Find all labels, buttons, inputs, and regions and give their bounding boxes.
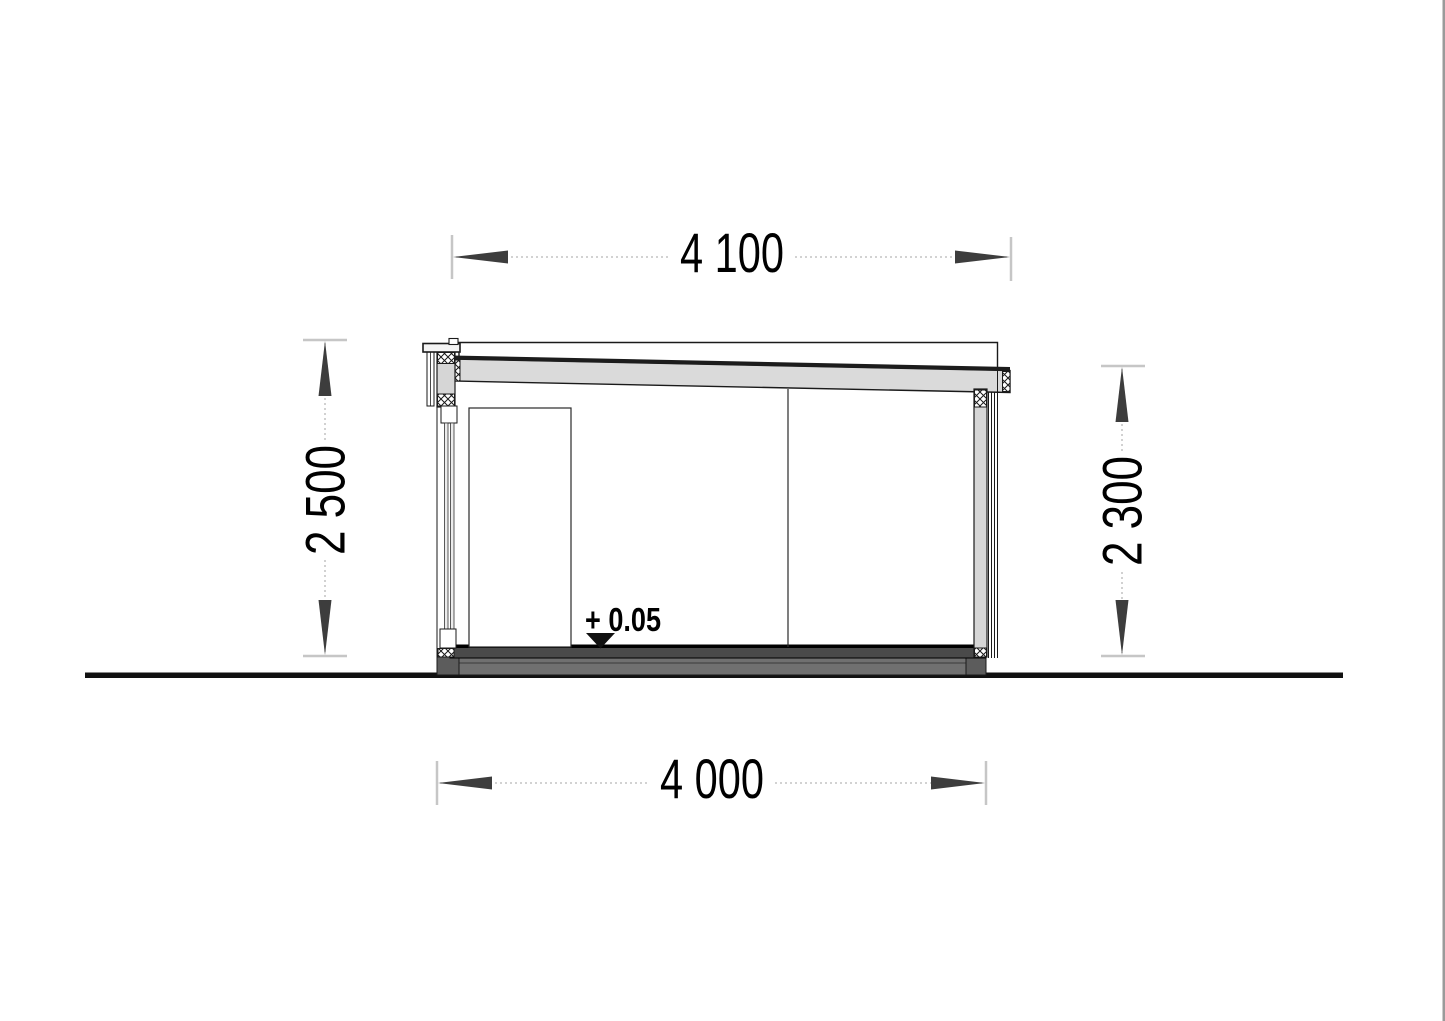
elevation-drawing: 4 100 4 000 2 500 2 300	[0, 0, 1445, 1021]
roof-beam-end-hatch-right	[1003, 372, 1011, 392]
floor-level-marker: + 0.05	[585, 601, 661, 649]
dimension-height-left: 2 500	[294, 340, 357, 656]
arrow-up-icon	[1116, 367, 1129, 422]
foundation-block-right	[966, 656, 986, 675]
arrow-left-icon	[438, 777, 492, 790]
arrow-down-icon	[1116, 600, 1129, 655]
arrow-left-icon	[453, 251, 508, 264]
left-sill-hatch	[438, 649, 454, 658]
dimension-base-width: 4 000	[437, 747, 986, 810]
dimension-height-left-label: 2 500	[294, 445, 357, 555]
arrow-up-icon	[319, 341, 332, 396]
left-fascia-tab	[449, 339, 458, 345]
elevation-drawing-page: 4 100 4 000 2 500 2 300	[0, 0, 1445, 1021]
floor-level-label: + 0.05	[585, 601, 661, 638]
left-post-hatch-bottom	[438, 394, 455, 406]
right-wall	[974, 371, 998, 658]
foundation-beam	[456, 657, 968, 675]
interior-door-leaf	[469, 408, 571, 647]
right-cladding-lines	[989, 371, 998, 658]
right-post-hatch-bottom	[975, 648, 987, 657]
dimension-height-right-label: 2 300	[1091, 456, 1154, 566]
arrow-right-icon	[955, 251, 1010, 264]
roof	[453, 343, 1011, 393]
left-glass-pane-inner	[451, 423, 455, 629]
left-wall	[423, 339, 460, 658]
left-post-hatch-top	[438, 353, 455, 364]
right-post-hatch-top	[975, 390, 987, 407]
dimension-roof-width: 4 100	[452, 221, 1011, 284]
dimension-height-right: 2 300	[1091, 366, 1154, 656]
dimension-roof-width-label: 4 100	[680, 221, 784, 284]
left-glazing-frame-top	[441, 406, 457, 423]
left-glazing-frame-bottom	[440, 629, 456, 648]
arrow-down-icon	[319, 600, 332, 655]
arrow-right-icon	[931, 777, 985, 790]
dimension-base-width-label: 4 000	[660, 747, 764, 810]
left-glass-pane-outer	[445, 423, 449, 629]
right-wall-post	[974, 389, 987, 657]
